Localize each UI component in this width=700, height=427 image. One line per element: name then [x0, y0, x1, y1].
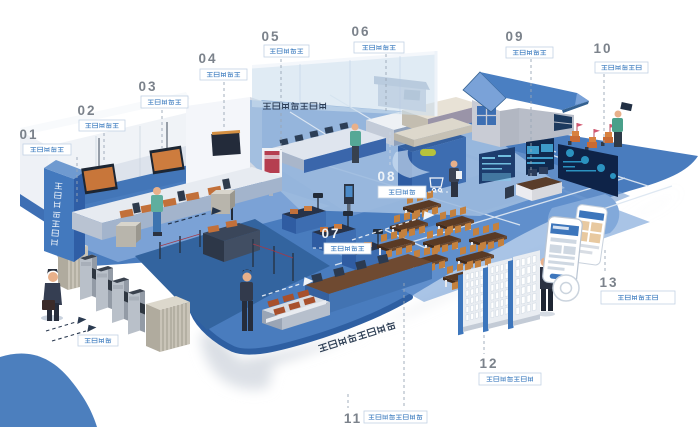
- svg-text:11: 11: [344, 411, 362, 426]
- svg-text:06: 06: [351, 24, 370, 39]
- svg-text:09: 09: [505, 29, 524, 44]
- svg-text:05: 05: [261, 29, 280, 44]
- svg-text:04: 04: [198, 51, 217, 66]
- svg-text:12: 12: [479, 356, 498, 371]
- svg-text:03: 03: [138, 79, 157, 94]
- svg-text:08: 08: [377, 169, 396, 184]
- svg-text:01: 01: [19, 127, 38, 142]
- svg-text:02: 02: [77, 103, 96, 118]
- svg-text:07: 07: [321, 226, 340, 241]
- svg-text:13: 13: [599, 275, 618, 290]
- svg-text:10: 10: [593, 41, 612, 56]
